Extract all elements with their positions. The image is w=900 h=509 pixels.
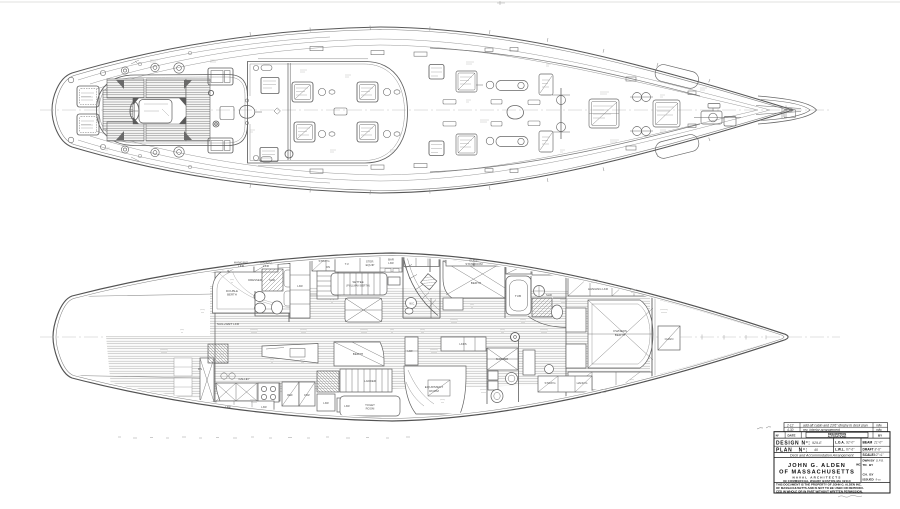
- svg-text:BY: BY: [878, 433, 882, 437]
- svg-text:929-E: 929-E: [812, 441, 822, 445]
- svg-text:HANG'G: HANG'G: [577, 381, 588, 385]
- svg-text:DESIGN Nº:: DESIGN Nº:: [776, 441, 811, 447]
- svg-text:21'-0": 21'-0": [873, 441, 883, 445]
- svg-text:92'-0": 92'-0": [846, 441, 855, 445]
- svg-text:PLAN Nº:: PLAN Nº:: [776, 447, 808, 453]
- svg-text:8'-6": 8'-6": [875, 447, 882, 451]
- svg-text:STOW'G: STOW'G: [544, 381, 555, 385]
- svg-text:LADDER: LADDER: [364, 379, 376, 383]
- svg-text:SAIL+WET LKR: SAIL+WET LKR: [217, 322, 240, 326]
- svg-text:INC: INC: [856, 462, 861, 466]
- svg-text:CHAIN: CHAIN: [665, 337, 674, 341]
- svg-text:LKR: LKR: [238, 264, 245, 268]
- svg-text:W.C.: W.C.: [409, 303, 415, 306]
- svg-text:EQUIP: EQUIP: [366, 263, 375, 267]
- svg-text:BEAM: BEAM: [863, 441, 873, 445]
- svg-text:STOW'G: STOW'G: [318, 259, 329, 263]
- svg-text:LKR: LKR: [297, 284, 302, 288]
- svg-text:mfw: mfw: [876, 424, 883, 428]
- svg-text:LKR: LKR: [388, 261, 393, 265]
- svg-text:SHR: SHR: [546, 293, 552, 297]
- svg-text:LKR: LKR: [225, 405, 230, 409]
- svg-text:REF: REF: [287, 393, 293, 397]
- svg-text:BERTH: BERTH: [615, 333, 625, 337]
- svg-text:ROOM: ROOM: [429, 389, 439, 393]
- svg-text:add aft cabin and 23'6" dinghy: add aft cabin and 23'6" dinghy to deck p…: [803, 423, 868, 427]
- svg-text:DWN BY: DWN BY: [863, 459, 875, 463]
- svg-text:(PULLMAN BERTH): (PULLMAN BERTH): [346, 284, 370, 288]
- svg-text:LKR: LKR: [344, 404, 349, 408]
- svg-text:LKR: LKR: [263, 264, 270, 268]
- svg-text:D.P.B.: D.P.B.: [876, 458, 884, 462]
- svg-text:TUB: TUB: [515, 294, 521, 298]
- svg-text:ISSUED: ISSUED: [863, 478, 875, 482]
- svg-text:CED IN WHOLE OR IN PART WITHOU: CED IN WHOLE OR IN PART WITHOUT WRITTEN …: [776, 489, 863, 493]
- svg-text:Deck and Accommodation Arran: Deck and Accommodation Arrangement: [790, 453, 854, 457]
- svg-text:L.O.A.: L.O.A.: [835, 441, 845, 445]
- svg-text:67'-6": 67'-6": [846, 447, 855, 451]
- svg-text:BERTH: BERTH: [471, 281, 481, 285]
- svg-text:FRZ: FRZ: [304, 393, 310, 397]
- svg-text:STATEROOM: STATEROOM: [465, 262, 483, 266]
- svg-text:L.W.L.: L.W.L.: [835, 447, 845, 451]
- svg-text:BERTH: BERTH: [227, 293, 237, 297]
- svg-text:DATE: DATE: [788, 433, 796, 437]
- svg-text:DN: DN: [326, 265, 330, 269]
- svg-text:BERTH: BERTH: [353, 352, 363, 356]
- svg-text:LKR: LKR: [261, 405, 266, 409]
- svg-text:ALTERATIONS: ALTERATIONS: [828, 435, 847, 439]
- svg-text:SHOWER: SHOWER: [496, 357, 509, 361]
- svg-text:40: 40: [814, 448, 818, 452]
- svg-text:JOHN G. ALDEN: JOHN G. ALDEN: [788, 463, 846, 469]
- svg-text:TR. BY: TR. BY: [863, 463, 874, 467]
- svg-text:1/2"=1': 1/2"=1': [874, 453, 884, 457]
- svg-text:CH. BY: CH. BY: [863, 472, 874, 476]
- svg-text:DRESSER: DRESSER: [248, 278, 262, 282]
- svg-text:2-12: 2-12: [786, 424, 794, 428]
- svg-text:SETTEE: SETTEE: [352, 280, 363, 284]
- svg-text:ROOM: ROOM: [366, 407, 375, 411]
- svg-text:T.V.: T.V.: [345, 262, 350, 266]
- svg-text:LKR: LKR: [323, 401, 328, 405]
- svg-text:9-xx: 9-xx: [876, 477, 882, 481]
- svg-text:HANGING LKR: HANGING LKR: [588, 287, 608, 291]
- svg-text:LKRS: LKRS: [459, 342, 466, 346]
- svg-text:DN: DN: [198, 367, 202, 371]
- svg-text:SHR: SHR: [269, 278, 275, 282]
- svg-text:GALLEY: GALLEY: [238, 377, 249, 381]
- svg-text:LKR: LKR: [407, 349, 412, 353]
- svg-text:DRAFT: DRAFT: [863, 447, 874, 451]
